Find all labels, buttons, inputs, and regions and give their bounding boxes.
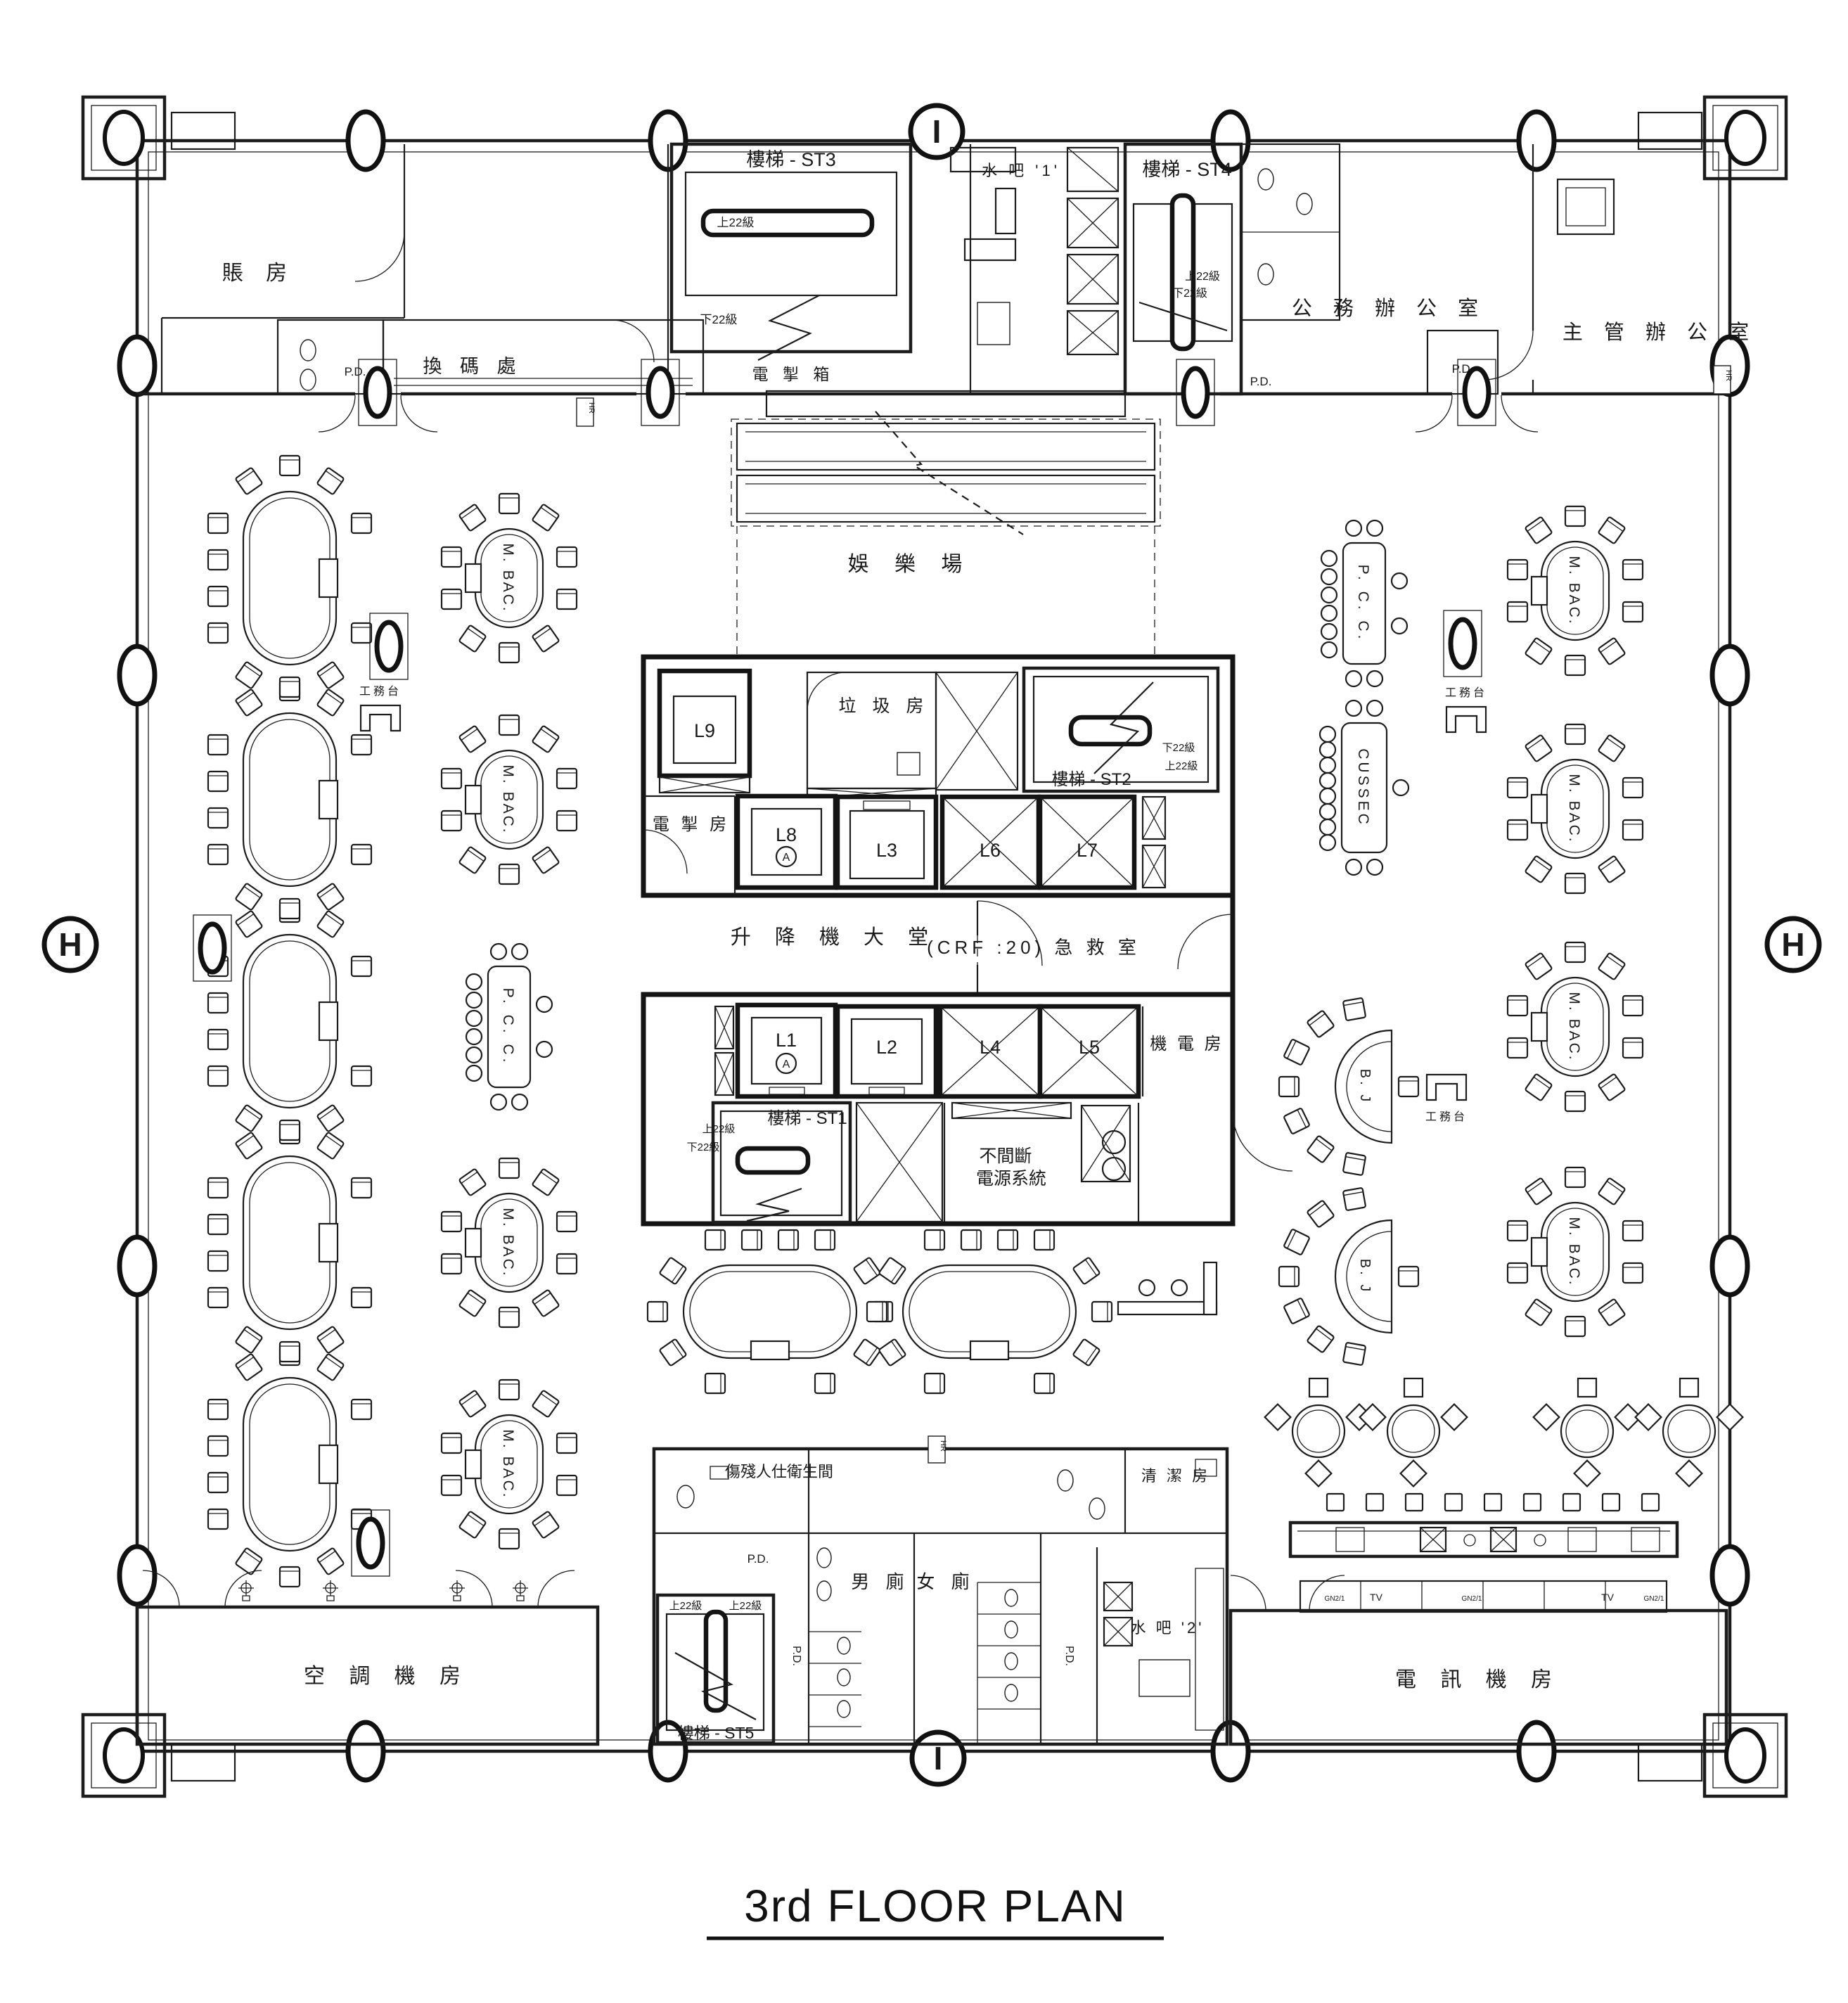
service-desk-2: 工務台 [1445, 686, 1487, 732]
table-mbac-2: M. BAC. [442, 715, 577, 884]
floor-plan-page: { "title": {"text": "3rd FLOOR PLAN"}, "… [0, 0, 1848, 2003]
mbac-label: M. BAC. [1566, 992, 1582, 1061]
service-desk-label: 工務台 [359, 685, 402, 698]
mbac-label: M. BAC. [1566, 774, 1582, 843]
table-mbac-7: M. BAC. [1508, 942, 1643, 1111]
me-room-label: 機 電 房 [1150, 1035, 1224, 1054]
mbac-label: M. BAC. [500, 543, 516, 613]
corner-column-bottom-left [83, 1715, 235, 1796]
room-cleaning: 清 潔 房 [1041, 1449, 1227, 1533]
lift-l2: L2 [838, 1006, 936, 1096]
room-wc-st4: P.D. [1241, 144, 1340, 388]
pd-label-4: P.D. [747, 1552, 769, 1566]
lift-l7: L7 [1040, 797, 1134, 888]
lift-lobby-strip: 升 降 機 大 堂 (CRF :20) 急 救 室 [731, 895, 1233, 994]
lift-l1: L1 A [738, 1005, 835, 1096]
cleaning-room-label: 清 潔 房 [1141, 1467, 1210, 1485]
switch-room-label: 電 掣 房 [653, 815, 730, 834]
lift-l3-label: L3 [876, 840, 897, 861]
casino-floor-label: 娛 樂 場 [848, 553, 973, 576]
room-chip-exchange-label: 換 碼 處 [423, 356, 522, 377]
grid-letter-left: H [58, 926, 82, 963]
stairs-st4-label: 樓梯 - ST4 [1142, 159, 1232, 180]
room-water-bar-2: 水 吧 '2' [1097, 1547, 1224, 1744]
gn-label-1: GN2/1 [1325, 1595, 1345, 1603]
mbac-label: M. BAC. [1566, 1217, 1582, 1286]
room-mens-toilet: 男 廁 P.D. [790, 1533, 914, 1744]
title-text: 3rd FLOOR PLAN [744, 1881, 1127, 1931]
st2-down-note: 下22級 [1162, 742, 1195, 754]
table-pcc-left: P. C. C. [466, 944, 552, 1110]
stairs-st1-label: 樓梯 - ST1 [767, 1109, 847, 1128]
bj-label: B. J [1357, 1069, 1373, 1104]
manager-office-label: 主 管 辦 公 室 [1563, 321, 1757, 344]
st5-up-note-1: 上22級 [669, 1600, 702, 1612]
tv-label-2: TV [1601, 1592, 1615, 1603]
mbac-label: M. BAC. [500, 1208, 516, 1277]
lift-l5: L5 [1040, 1006, 1138, 1096]
table-mbac-3: M. BAC. [442, 1158, 577, 1327]
pd-label-6: P.D. [1063, 1646, 1075, 1666]
mbac-label: M. BAC. [1566, 556, 1582, 625]
room-me: 機 電 房 [1143, 1006, 1292, 1171]
telecom-room-label: 電 訊 機 房 [1395, 1668, 1561, 1691]
bj-label: B. J [1357, 1259, 1373, 1294]
st2-up-note: 上22級 [1165, 760, 1198, 772]
switch-box-label: 電 掣 箱 [752, 365, 835, 383]
corner-column-top-right [1638, 97, 1786, 179]
table-bj-1: B. J [1279, 998, 1418, 1175]
service-shafts-top [1067, 148, 1118, 354]
pcc-label: P. C. C. [500, 988, 516, 1066]
pcc-label: P. C. C. [1355, 565, 1371, 643]
lift-l2-label: L2 [876, 1037, 897, 1058]
service-desk-label: 工務台 [1425, 1111, 1468, 1123]
room-garbage: 垃 圾 房 [807, 672, 936, 798]
st1-up-note: 上22級 [702, 1123, 736, 1135]
lift-l1-label: L1 [776, 1030, 797, 1051]
lift-l1-alarm: A [783, 1058, 790, 1070]
service-desk-4 [1118, 1262, 1217, 1314]
disabled-toilet-label: 傷殘人仕衛生間 [725, 1463, 833, 1480]
first-aid-label: (CRF :20) 急 救 室 [927, 937, 1141, 958]
water-bar-1-label: 水 吧 '1' [982, 162, 1060, 179]
ups-label-1: 不間斷 [979, 1146, 1032, 1166]
stairs-st5: 上22級 上22級 樓梯 - ST5 [657, 1595, 774, 1743]
table-pcc-right: P. C. C. [1321, 520, 1407, 686]
lift-l8-alarm: A [783, 852, 790, 864]
stairs-st2: 樓梯 - ST2 下22級 上22級 [1024, 668, 1218, 791]
lift-lobby-label: 升 降 機 大 堂 [731, 926, 937, 949]
drawing-title: 3rd FLOOR PLAN [707, 1881, 1164, 1938]
grid-bubble-bottom: I [912, 1732, 964, 1784]
escalator-block: 娛 樂 場 [731, 391, 1160, 658]
table-cussec: CUSSEC [1320, 700, 1409, 875]
pd-label-5: P.D. [790, 1646, 802, 1666]
st1-down-note: 下22級 [687, 1141, 720, 1153]
bar-counter: TV TV GN2/1 GN2/1 GN2/1 [1290, 1494, 1677, 1612]
tv-label-1: TV [1370, 1592, 1383, 1603]
mbac-label: M. BAC. [500, 764, 516, 834]
table-bj-2: B. J [1279, 1188, 1418, 1365]
public-office-label: 公 務 辦 公 室 [1292, 297, 1486, 320]
room-womens-toilet: 女 廁 P.D. [914, 1533, 1075, 1744]
hr-label-2: HR [1724, 370, 1733, 381]
floor-plan-drawing: I I H H 賬 房 P.D. [0, 0, 1848, 2003]
room-ups: 不間斷 電源系統 [944, 1103, 1138, 1222]
room-ac-plant: 空 調 機 房 [137, 1570, 598, 1744]
table-mbac-6: M. BAC. [1508, 724, 1643, 893]
service-desk-1: 工務台 [359, 685, 402, 731]
stairs-st3: 樓梯 - ST3 上22級 下22級 [672, 144, 911, 360]
grid-bubble-right: H [1767, 919, 1819, 971]
grid-bubble-top: I [911, 105, 963, 158]
room-cashier-label: 賬 房 [222, 262, 295, 285]
lift-l4: L4 [940, 1006, 1040, 1096]
lift-l6-label: L6 [980, 840, 1001, 861]
lift-l9-label: L9 [694, 720, 715, 741]
room-cashier: 賬 房 [162, 144, 404, 394]
room-water-bar-1: 水 吧 '1' [951, 144, 1060, 394]
lift-l8-label: L8 [776, 824, 797, 845]
water-bar-2-label: 水 吧 '2' [1131, 1619, 1205, 1637]
pd-label-1: P.D. [345, 365, 366, 378]
grid-letter-right: H [1781, 926, 1804, 963]
lift-l4-label: L4 [980, 1037, 1001, 1058]
ups-label-2: 電源系統 [976, 1169, 1046, 1189]
stairs-st2-label: 樓梯 - ST2 [1051, 770, 1131, 789]
lift-l7-label: L7 [1077, 840, 1098, 861]
pd-label-2: P.D. [1250, 375, 1272, 388]
bottom-band: 空 調 機 房 傷殘人仕衛生間 P.D. 上22級 上22級 樓梯 - ST5 [137, 1436, 1726, 1744]
corner-column-bottom-right [1638, 1715, 1786, 1796]
corner-column-top-left [83, 97, 235, 179]
lift-l3: L3 [838, 797, 936, 888]
stairs-st3-label: 樓梯 - ST3 [746, 149, 836, 170]
service-desk-label: 工務台 [1445, 686, 1487, 699]
room-switch: 電 掣 房 [643, 796, 735, 895]
lift-l9: L9 [660, 671, 750, 776]
stairs-st1: 樓梯 - ST1 上22級 下22級 [687, 1103, 850, 1222]
hr-label-1: HR [587, 402, 596, 414]
table-mbac-8: M. BAC. [1508, 1167, 1643, 1336]
table-mbac-4: M. BAC. [442, 1380, 577, 1549]
st3-up-note: 上22級 [717, 216, 755, 229]
mens-toilet-label: 男 廁 [851, 1571, 909, 1592]
lift-l6: L6 [942, 797, 1039, 888]
garbage-room-label: 垃 圾 房 [839, 696, 930, 716]
hr-label-3: HR [939, 1440, 947, 1452]
st3-down-note: 下22級 [700, 313, 738, 326]
toilet-block: 傷殘人仕衛生間 P.D. 上22級 上22級 樓梯 - ST5 男 廁 [654, 1436, 1227, 1744]
ac-plant-label: 空 調 機 房 [304, 1665, 470, 1688]
gaming-floor: M. BAC. M. BAC. P. C. C. M. BAC. M. BAC.… [193, 359, 1743, 1612]
grid-bubble-left: H [44, 919, 96, 971]
st5-up-note-2: 上22級 [729, 1600, 762, 1612]
st4-up-note: 上22級 [1185, 270, 1220, 283]
cussec-label: CUSSEC [1355, 748, 1371, 827]
core-upper: L9 垃 圾 房 樓梯 - ST2 下22級 上22級 電 掣 房 [643, 657, 1233, 895]
table-mbac-1: M. BAC. [442, 494, 577, 663]
core-lower: L1 A L2 L4 L5 機 電 房 [643, 994, 1292, 1224]
stairs-st5-label: 樓梯 - ST5 [678, 1724, 755, 1742]
gn-label-2: GN2/1 [1462, 1595, 1482, 1603]
grid-letter-top: I [932, 113, 942, 150]
womens-toilet-label: 女 廁 [916, 1571, 975, 1592]
st4-down-note: 下22級 [1172, 287, 1207, 300]
table-mbac-5: M. BAC. [1508, 506, 1643, 675]
stairs-st4: 樓梯 - ST4 上22級 下22級 [1125, 144, 1241, 394]
mbac-label: M. BAC. [500, 1429, 516, 1499]
gn-label-3: GN2/1 [1644, 1595, 1664, 1603]
lift-l8: L8 A [738, 796, 835, 888]
service-desk-3: 工務台 [1425, 1075, 1468, 1123]
lift-l5-label: L5 [1079, 1037, 1100, 1058]
